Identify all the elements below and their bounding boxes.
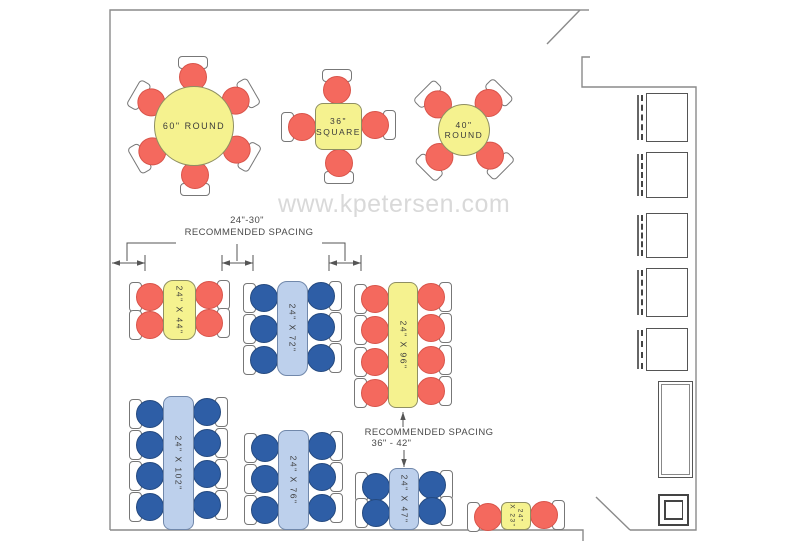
chair-seat — [418, 497, 446, 525]
table-rect-44: 24" X 44" — [163, 280, 196, 340]
chair-seat — [195, 309, 223, 337]
chair — [131, 488, 167, 524]
top-spacing-range: 24"-30" — [197, 215, 297, 226]
chair — [131, 306, 167, 342]
top-spacing-label: RECOMMENDED SPACING — [164, 227, 334, 238]
chair — [320, 71, 356, 107]
chair-seat — [250, 346, 278, 374]
chair-seat — [250, 284, 278, 312]
booth-seat-line — [637, 154, 639, 196]
chair-seat — [193, 460, 221, 488]
chair-seat — [417, 283, 445, 311]
chair — [305, 491, 341, 527]
table-rect-47: 24" X 47" — [389, 468, 419, 530]
table-label: 24" X 102" — [173, 435, 183, 490]
table-label: 60" ROUND — [163, 121, 225, 132]
chair — [356, 311, 392, 347]
chair-seat — [474, 503, 502, 531]
chair-seat — [251, 465, 279, 493]
booth-seat-dash — [641, 95, 643, 140]
booth-seat-dash — [641, 215, 643, 256]
service-stand-inner — [664, 500, 683, 520]
chair — [357, 494, 393, 530]
counter — [658, 381, 693, 478]
chair — [356, 374, 392, 410]
chair-seat — [323, 76, 351, 104]
chair-seat — [193, 429, 221, 457]
table-label: 24" X 44" — [174, 286, 184, 335]
chair-seat — [193, 491, 221, 519]
chair-seat — [530, 501, 558, 529]
chair — [415, 494, 451, 530]
chair-seat — [417, 377, 445, 405]
chair-seat — [307, 344, 335, 372]
chair-seat — [288, 113, 316, 141]
table-label: 40" ROUND — [445, 120, 484, 140]
counter-inner — [661, 384, 690, 475]
chair-seat — [361, 111, 389, 139]
chair-seat — [308, 494, 336, 522]
chair-seat — [362, 499, 390, 527]
chair-seat — [136, 431, 164, 459]
booth-seat-dash — [641, 154, 643, 196]
chair-seat — [250, 315, 278, 343]
chair — [320, 146, 356, 182]
dimension-leader — [322, 243, 345, 261]
table-label: 36" SQUARE — [316, 116, 361, 136]
table-rect-102: 24" X 102" — [163, 396, 194, 530]
table-rect-76: 24" X 76" — [278, 430, 309, 530]
chair — [414, 374, 450, 410]
dimension-leader — [127, 243, 176, 261]
chair — [192, 306, 228, 342]
service-stand — [658, 494, 689, 526]
table-rect-23: 24" X 23" — [501, 502, 531, 530]
booth-seat-line — [637, 330, 639, 369]
table-round-40: 40" ROUND — [438, 104, 490, 156]
chair-seat — [136, 493, 164, 521]
booth-seat-line — [637, 270, 639, 315]
wall-line — [596, 497, 630, 530]
chair-seat — [417, 346, 445, 374]
floor-plan-canvas: www.kpetersen.com 24"-30" RECOMMENDED SP… — [0, 0, 800, 545]
chair-seat — [361, 316, 389, 344]
table-label: 24" X 76" — [288, 456, 298, 505]
chair-seat — [307, 313, 335, 341]
chair-seat — [193, 398, 221, 426]
wall-line — [110, 530, 583, 541]
chair — [358, 108, 394, 144]
chair — [414, 311, 450, 347]
table-label: 24" X 23" — [508, 504, 524, 527]
booth-table — [646, 268, 688, 317]
chair — [469, 498, 505, 534]
chair-seat — [361, 348, 389, 376]
chair — [304, 341, 340, 377]
chair-seat — [307, 282, 335, 310]
chair-seat — [251, 496, 279, 524]
chair-seat — [361, 379, 389, 407]
chair — [246, 491, 282, 527]
chair-seat — [325, 149, 353, 177]
table-label: 24" X 96" — [398, 321, 408, 370]
booth-table — [646, 93, 688, 142]
table-rect-96: 24" X 96" — [388, 282, 418, 408]
chair-seat — [251, 434, 279, 462]
booth-table — [646, 152, 688, 198]
bottom-spacing-range: 36" - 42" — [344, 438, 439, 449]
table-label: 24" X 72" — [287, 304, 297, 353]
chair-seat — [308, 463, 336, 491]
chair-seat — [136, 311, 164, 339]
chair-seat — [361, 285, 389, 313]
chair-seat — [417, 314, 445, 342]
chair-seat — [136, 462, 164, 490]
booth-seat-dash — [641, 270, 643, 315]
booth-seat-line — [637, 95, 639, 140]
chair — [190, 488, 226, 524]
watermark: www.kpetersen.com — [278, 190, 510, 219]
table-rect-72: 24" X 72" — [277, 281, 308, 376]
booth-table — [646, 213, 688, 258]
chair — [245, 341, 281, 377]
chair — [283, 108, 319, 144]
chair-seat — [136, 400, 164, 428]
chair — [527, 498, 563, 534]
booth-seat-line — [637, 215, 639, 256]
booth-table — [646, 328, 688, 371]
wall-line — [547, 10, 580, 44]
chair-seat — [308, 432, 336, 460]
table-round-60: 60" ROUND — [154, 86, 234, 166]
chair-seat — [195, 281, 223, 309]
booth-seat-dash — [641, 330, 643, 369]
table-label: 24" X 47" — [399, 475, 409, 524]
bottom-spacing-label: RECOMMENDED SPACING — [344, 427, 514, 438]
table-square-36: 36" SQUARE — [315, 103, 362, 150]
